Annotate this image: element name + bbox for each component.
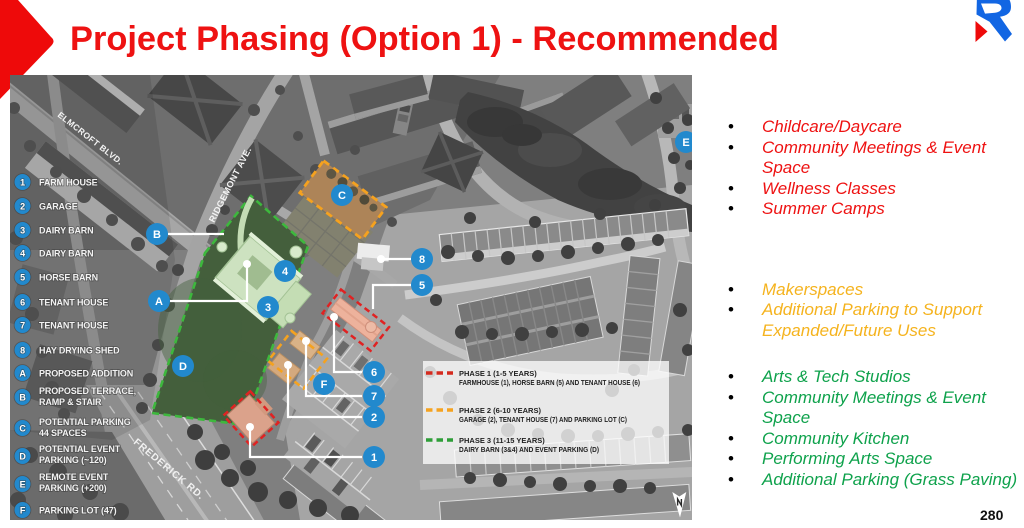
svg-text:B: B [19,393,26,403]
svg-text:GARAGE (2), TENANT HOUSE (7) A: GARAGE (2), TENANT HOUSE (7) AND PARKING… [459,415,627,424]
svg-text:PARKING (~120): PARKING (~120) [39,455,107,465]
svg-text:FARM HOUSE: FARM HOUSE [39,178,98,188]
svg-text:6: 6 [371,367,377,379]
svg-text:PROPOSED TERRACE,: PROPOSED TERRACE, [39,386,136,396]
svg-text:3: 3 [20,226,25,236]
svg-text:RAMP & STAIR: RAMP & STAIR [39,397,102,407]
svg-text:2: 2 [371,412,377,424]
svg-text:PHASE 2 (6-10 YEARS): PHASE 2 (6-10 YEARS) [459,406,541,415]
svg-text:POTENTIAL PARKING: POTENTIAL PARKING [39,417,131,427]
svg-text:GARAGE: GARAGE [39,202,78,212]
svg-text:44 SPACES: 44 SPACES [39,428,87,438]
svg-text:DAIRY BARN: DAIRY BARN [39,226,94,236]
svg-text:8: 8 [419,254,425,266]
svg-text:E: E [20,480,26,490]
svg-text:B: B [153,229,161,241]
svg-text:1: 1 [371,452,377,464]
svg-text:D: D [179,361,187,373]
svg-text:PARKING LOT (47): PARKING LOT (47) [39,506,117,516]
svg-text:A: A [19,369,26,379]
svg-text:5: 5 [20,273,25,283]
svg-text:1: 1 [20,178,25,188]
svg-text:A: A [155,296,163,308]
svg-text:D: D [19,452,26,462]
svg-text:POTENTIAL EVENT: POTENTIAL EVENT [39,444,121,454]
svg-text:DAIRY BARN: DAIRY BARN [39,249,94,259]
svg-text:8: 8 [20,346,25,356]
svg-text:PROPOSED ADDITION: PROPOSED ADDITION [39,369,133,379]
svg-text:5: 5 [419,280,425,292]
svg-text:HORSE BARN: HORSE BARN [39,273,98,283]
svg-text:DAIRY BARN (3&4) AND EVENT PAR: DAIRY BARN (3&4) AND EVENT PARKING (D) [459,445,599,454]
svg-text:TENANT HOUSE: TENANT HOUSE [39,321,108,331]
svg-text:4: 4 [282,266,289,278]
svg-text:TENANT HOUSE: TENANT HOUSE [39,298,108,308]
svg-text:PARKING (+200): PARKING (+200) [39,483,107,493]
svg-text:7: 7 [20,321,25,331]
svg-text:C: C [338,190,346,202]
svg-text:E: E [682,137,689,149]
svg-text:PHASE 1 (1-5 YEARS): PHASE 1 (1-5 YEARS) [459,369,537,378]
svg-text:HAY DRYING SHED: HAY DRYING SHED [39,346,120,356]
svg-text:FARMHOUSE (1), HORSE BARN (5): FARMHOUSE (1), HORSE BARN (5) AND TENANT… [459,378,640,387]
svg-text:4: 4 [20,249,25,259]
svg-text:C: C [19,424,26,434]
svg-text:2: 2 [20,202,25,212]
svg-text:F: F [321,379,328,391]
svg-text:3: 3 [265,302,271,314]
svg-text:6: 6 [20,298,25,308]
svg-text:REMOTE EVENT: REMOTE EVENT [39,472,109,482]
svg-text:PHASE 3 (11-15 YEARS): PHASE 3 (11-15 YEARS) [459,436,545,445]
svg-text:F: F [20,506,26,516]
svg-text:7: 7 [371,391,377,403]
